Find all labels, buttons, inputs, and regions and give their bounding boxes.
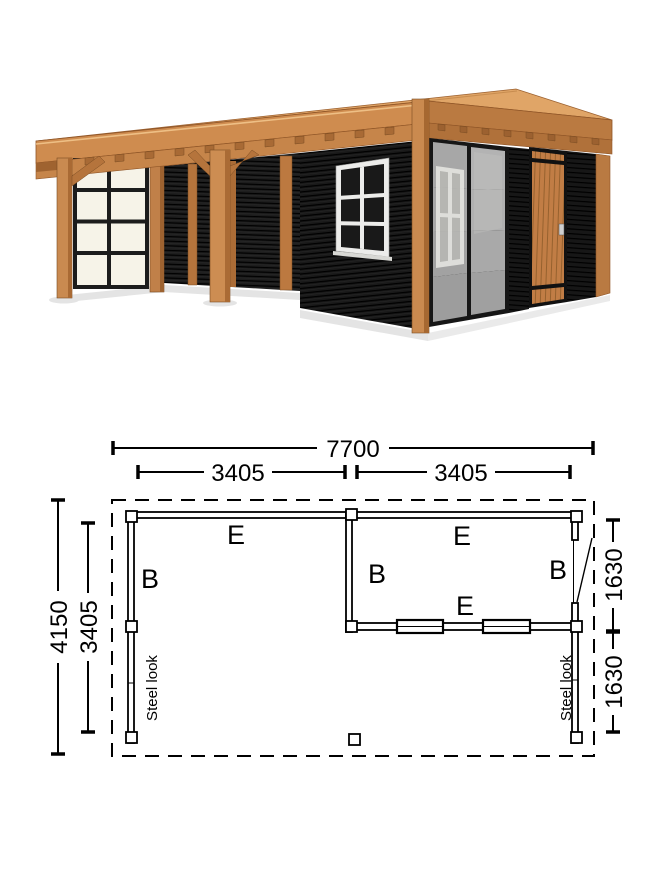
dim-inner-depth-text-group: 3405 (76, 593, 103, 661)
label-right-room-top: E (453, 521, 471, 551)
post (126, 621, 137, 632)
floor-plan: 7700 3405 3405 4150 (46, 435, 628, 756)
dim-inner-depth-text: 3405 (76, 600, 103, 653)
dim-right-upper-text-group: 1630 (601, 542, 628, 608)
front-window (333, 158, 392, 261)
door-symbol (574, 538, 593, 603)
steel-look-glass-panel (429, 138, 509, 327)
label-right-room-left: B (368, 559, 386, 589)
wall-partition (346, 512, 352, 632)
post (349, 734, 360, 745)
dim-total-depth-text-group: 4150 (46, 591, 73, 663)
dim-total-depth-text: 4150 (46, 600, 73, 653)
right-rear-corner-post (596, 154, 610, 297)
steel-look-left-text: Steel look (144, 655, 161, 721)
garden-house-drawing: 7700 3405 3405 4150 (0, 0, 650, 885)
left-side-wall (73, 158, 164, 292)
front-right-corner-post (412, 99, 429, 333)
post (571, 621, 582, 632)
label-left-room-top: E (227, 520, 245, 550)
door-handle (559, 224, 564, 235)
steel-look-left-group: Steel look (144, 655, 161, 721)
dim-left-bay-text: 3405 (211, 460, 264, 487)
wall-bottom-right-room (346, 623, 578, 630)
interior-window-through-glass (436, 166, 464, 268)
glass-reflection (474, 152, 502, 234)
door-leaf (577, 538, 592, 602)
label-right-room-bottom: E (456, 591, 474, 621)
post (346, 621, 357, 632)
right-rear-wall (567, 151, 596, 302)
post (571, 732, 582, 743)
label-left-room-side: B (141, 564, 159, 594)
post (571, 511, 582, 522)
back-wall-stud (280, 156, 292, 290)
right-side-face (428, 123, 612, 327)
steel-look-right-group: Steel look (558, 655, 575, 721)
dim-right-lower-text: 1630 (601, 655, 628, 708)
post (126, 511, 137, 522)
dim-total-width-text: 7700 (326, 436, 379, 463)
render-3d (36, 89, 612, 341)
label-right-room-right: B (549, 555, 567, 585)
drawing-page: 7700 3405 3405 4150 (0, 0, 650, 885)
post (346, 509, 357, 520)
dim-right-upper-text: 1630 (601, 548, 628, 601)
right-wall-strip (509, 147, 529, 313)
dim-right-bay-text: 3405 (434, 460, 487, 487)
post (126, 732, 137, 743)
enclosed-front-wall (300, 140, 428, 331)
wooden-door (529, 147, 567, 308)
steel-look-right-text: Steel look (558, 655, 575, 721)
back-wall-stud (188, 164, 197, 285)
dim-right-lower-text-group: 1630 (601, 649, 628, 715)
